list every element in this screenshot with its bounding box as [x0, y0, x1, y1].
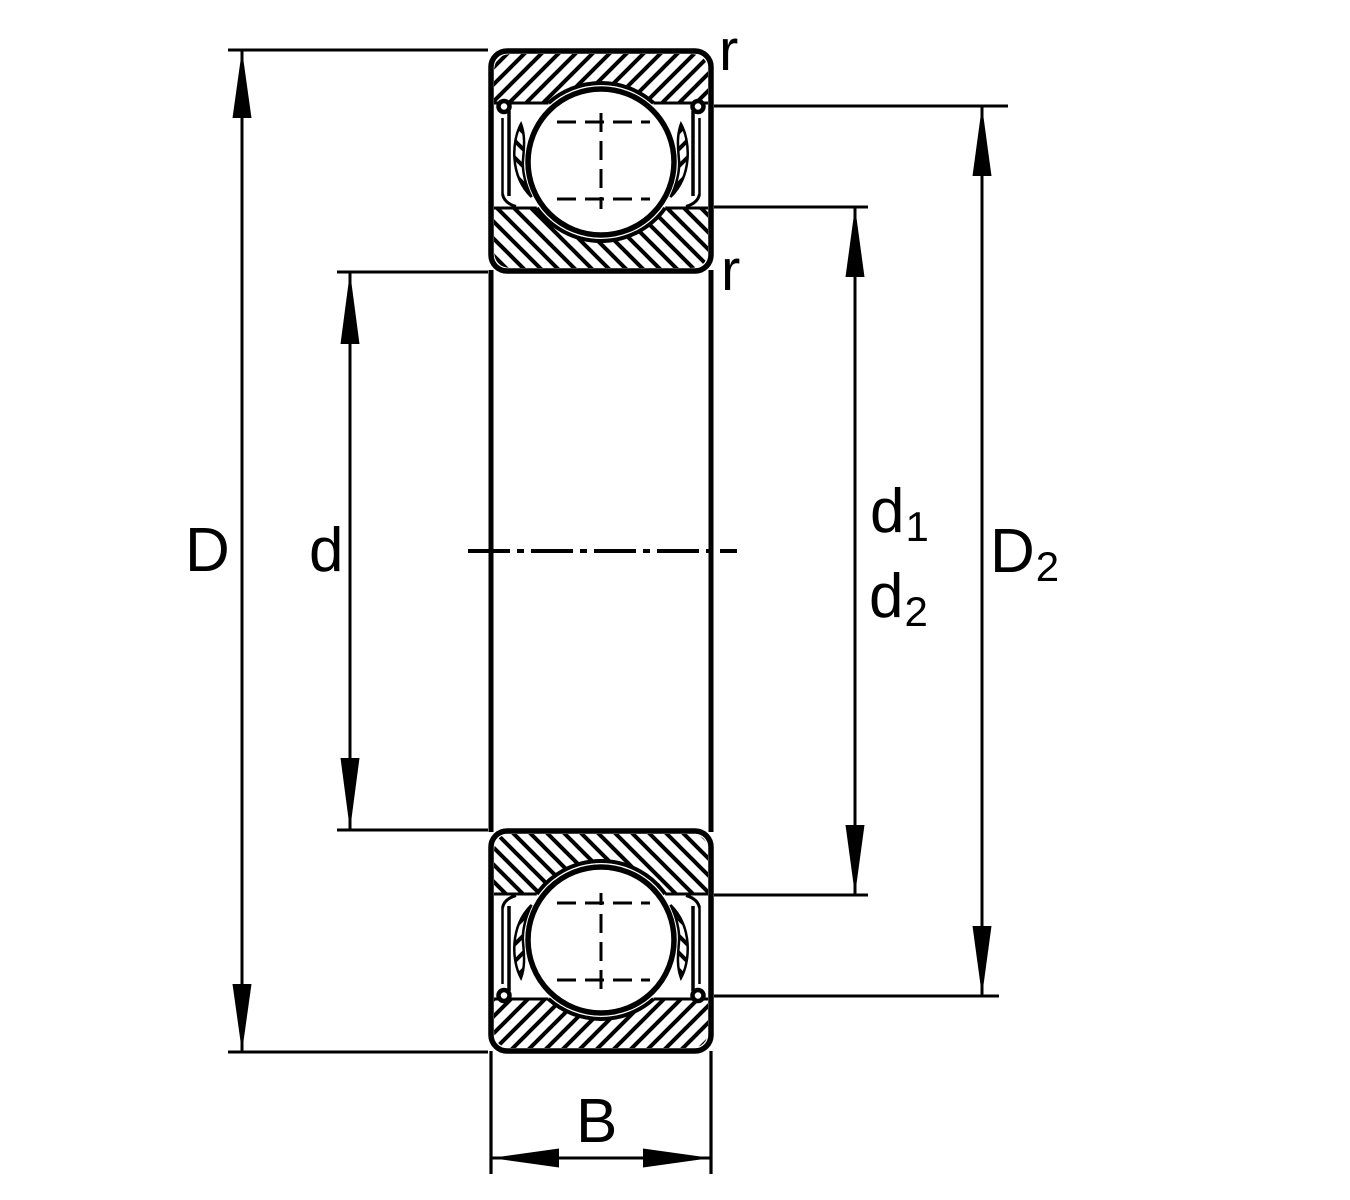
arrowhead-right [643, 1149, 711, 1168]
bearing-dimension-diagram: D d d1 d2 D2 B r r [0, 0, 1350, 1200]
arrowhead-down [341, 758, 360, 830]
arrowhead-up [973, 106, 992, 176]
arrowhead-down [973, 926, 992, 996]
arrowhead-up [846, 207, 865, 277]
dimension-d1-d2 [714, 207, 868, 895]
arrowhead-up [341, 272, 360, 344]
label-diameter-d2: d2 [869, 566, 928, 633]
arrowhead-left [491, 1149, 559, 1168]
label-corner-radius-r-top: r [719, 22, 739, 86]
label-outer-diameter-D: D [185, 520, 231, 587]
label-diameter-d1: d1 [870, 481, 929, 548]
label-diameter-D2: D2 [990, 521, 1059, 588]
bearing-section-top [491, 51, 711, 271]
label-corner-radius-r-bottom: r [721, 242, 741, 306]
arrowhead-down [233, 984, 252, 1052]
dimension-D2 [714, 106, 1008, 996]
bearing-section-bottom [491, 831, 711, 1051]
dimension-d [337, 272, 488, 830]
diagram-linework [0, 0, 1350, 1200]
arrowhead-up [233, 50, 252, 118]
arrowhead-down [846, 825, 865, 895]
label-bore-diameter-d: d [309, 520, 344, 587]
dimension-D [228, 50, 488, 1052]
label-width-B: B [576, 1091, 618, 1158]
